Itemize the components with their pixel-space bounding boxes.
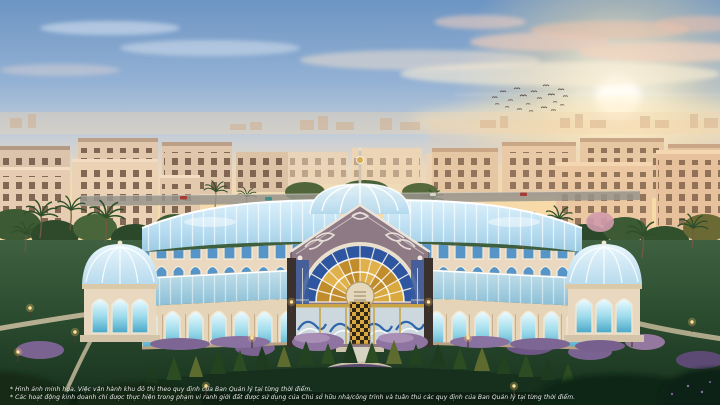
disclaimer-line-1: * Hình ảnh minh họa. Việc vận hành khu đ… [10, 386, 575, 394]
end-pavilion [80, 241, 160, 342]
scene-aerial-render: * Hình ảnh minh họa. Việc vận hành khu đ… [0, 0, 720, 405]
disclaimer-line-2: * Các hoạt động kinh doanh chỉ được thực… [10, 394, 575, 402]
disclaimer: * Hình ảnh minh họa. Việc vận hành khu đ… [10, 386, 575, 401]
checkered-band [350, 302, 370, 344]
